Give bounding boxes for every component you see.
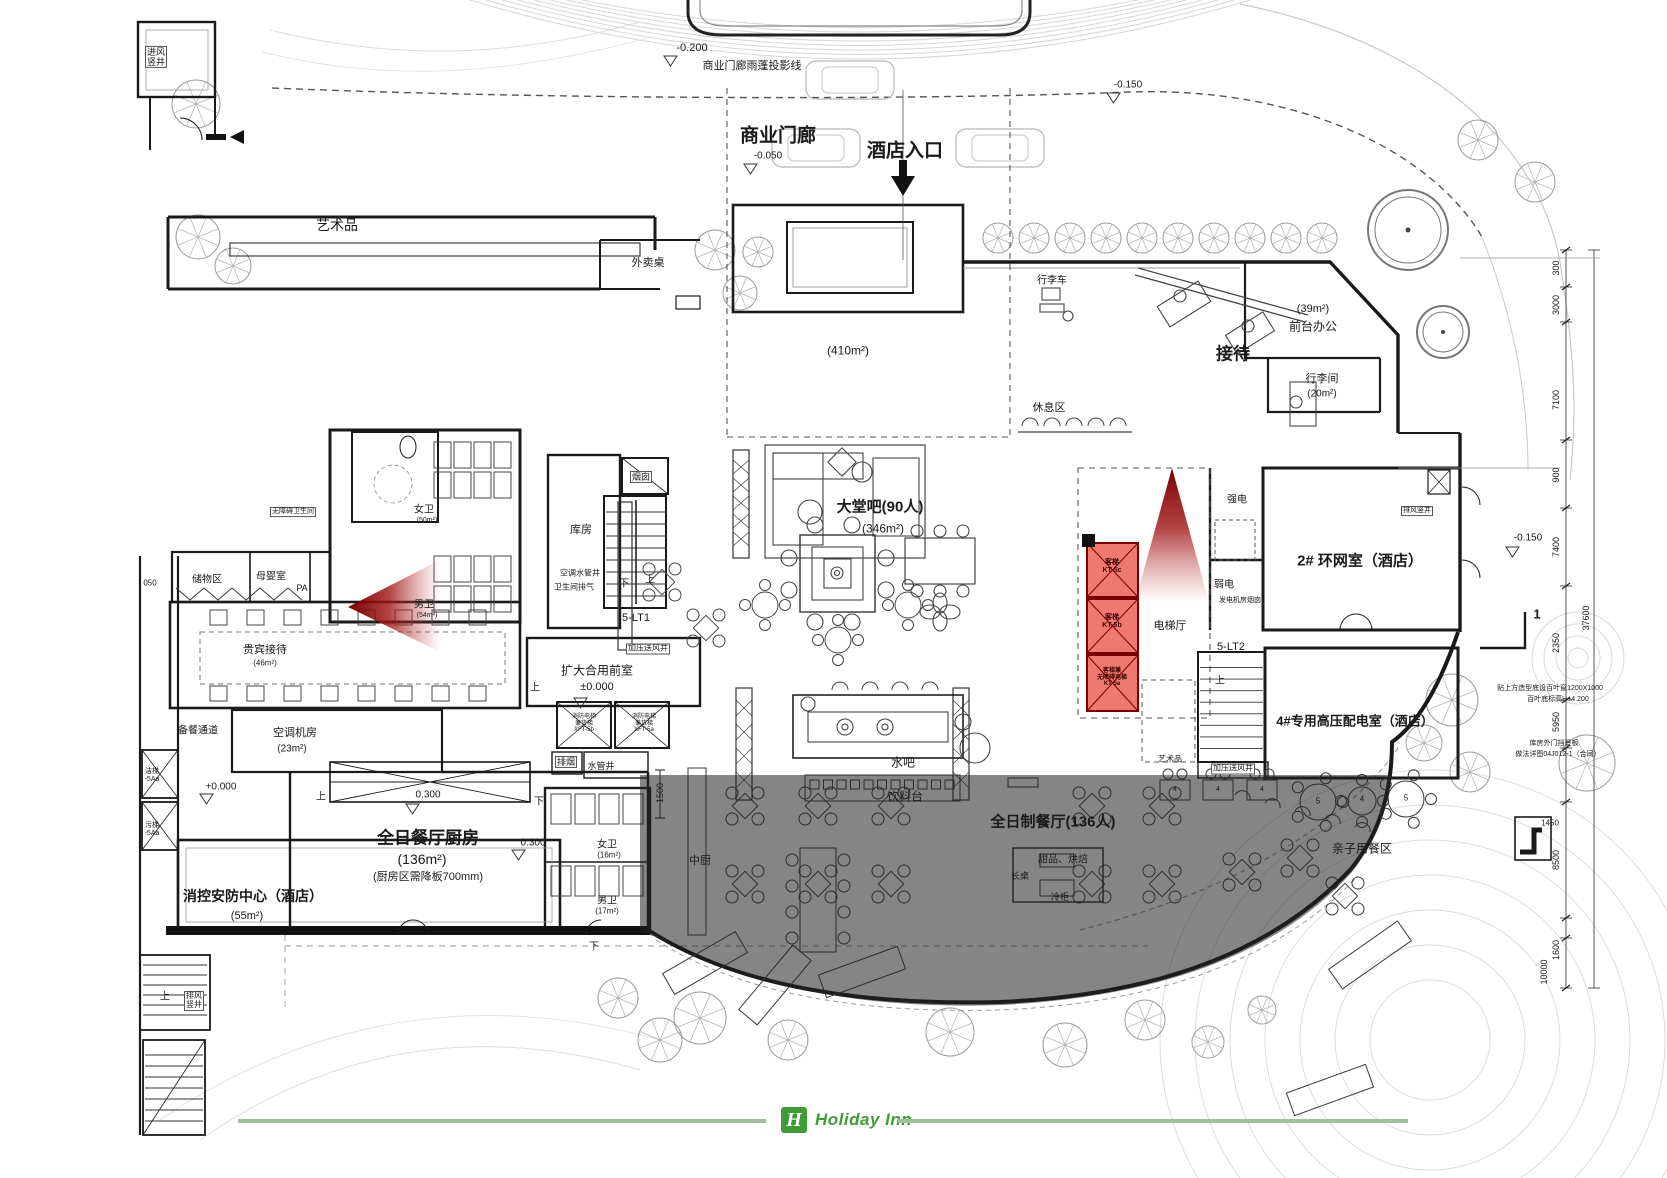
- footer-rule-left: [238, 1119, 766, 1123]
- logo-monogram: H: [786, 1109, 802, 1132]
- entrance-arrow-icon: [891, 90, 915, 260]
- red-arrow-up: [1135, 468, 1209, 602]
- dining-zone-overlay: [640, 775, 1390, 1006]
- plan-linework: [0, 0, 1667, 1178]
- site-boundary: [272, 4, 1574, 480]
- portico-canopy: [688, 0, 1030, 35]
- dimension-chain: [1398, 247, 1600, 991]
- floor-plan-canvas: -0.200商业门廊雨蓬投影线商业门廊-0.050酒店入口-0.150进风 竖井…: [0, 0, 1667, 1178]
- elevator-bank-highlight: [1082, 534, 1138, 711]
- footer-rule-right: [898, 1119, 1408, 1123]
- red-arrow-left: [348, 560, 440, 652]
- level-markers: [200, 56, 1519, 860]
- lobby-bar-furniture: [765, 268, 1316, 787]
- roundabout: [1368, 190, 1469, 358]
- west-arrow-icon: [206, 130, 244, 144]
- holiday-inn-logo: H: [781, 1107, 807, 1133]
- parked-cars: [772, 61, 1044, 167]
